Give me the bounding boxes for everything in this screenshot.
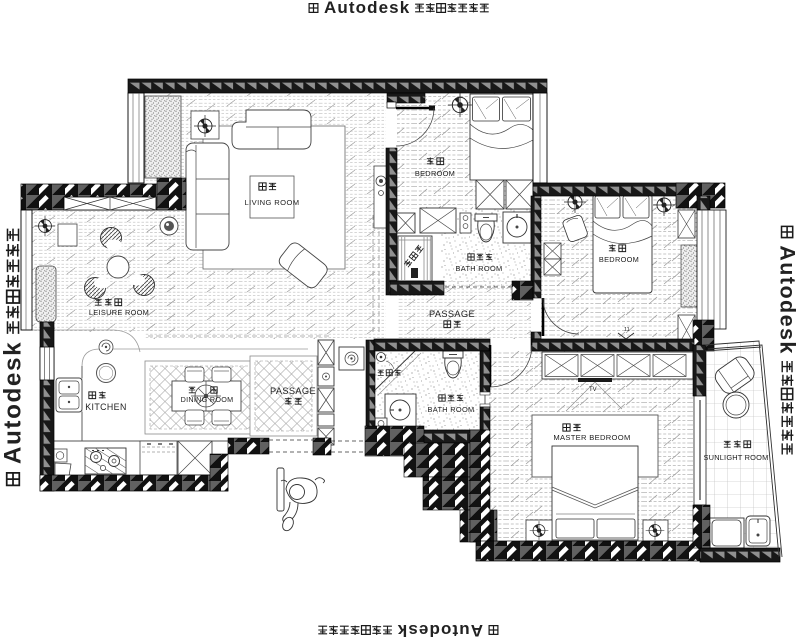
svg-text:LEISURE ROOM: LEISURE ROOM: [89, 308, 149, 317]
svg-text:TV: TV: [589, 387, 597, 393]
svg-text:BEDROOM: BEDROOM: [599, 255, 639, 264]
svg-text:PASSAGE: PASSAGE: [429, 309, 475, 319]
svg-text:LIVING ROOM: LIVING ROOM: [244, 198, 299, 207]
svg-text:SUNLIGHT ROOM: SUNLIGHT ROOM: [704, 453, 769, 462]
svg-text:BATH ROOM: BATH ROOM: [428, 405, 475, 414]
svg-text:DINING ROOM: DINING ROOM: [181, 395, 234, 404]
svg-text:11: 11: [624, 327, 630, 333]
svg-text:BATH ROOM: BATH ROOM: [456, 264, 503, 273]
svg-text:PASSAGE: PASSAGE: [270, 386, 316, 396]
svg-text:MASTER BEDROOM: MASTER BEDROOM: [553, 433, 630, 442]
svg-text:KITCHEN: KITCHEN: [85, 402, 126, 412]
svg-text:BEDROOM: BEDROOM: [415, 169, 455, 178]
